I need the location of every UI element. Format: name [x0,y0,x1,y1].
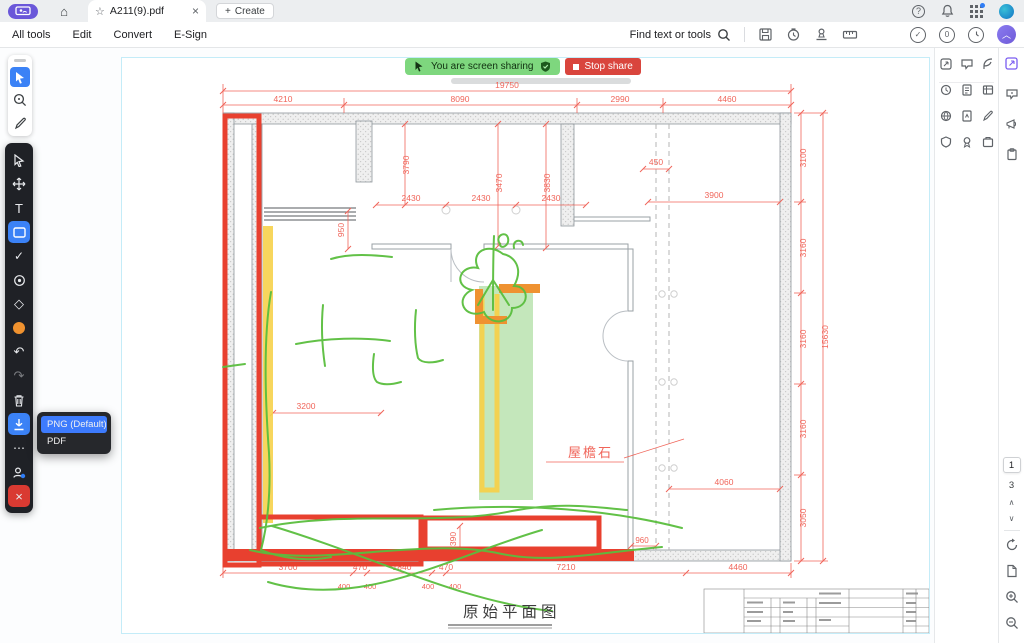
tool-icon-11[interactable] [956,134,977,149]
zoom-tool-button[interactable] [10,90,30,110]
page-number-input[interactable]: 1 [1003,457,1021,473]
export-share-icon[interactable] [1004,56,1019,76]
trash-button[interactable] [8,389,30,411]
right-tools-panel [934,48,998,643]
star-icon[interactable]: ☆ [95,5,105,18]
screen-share-banner: You are screen sharing Stop share [405,58,641,75]
svg-text:19750: 19750 [495,80,519,90]
svg-text:3830: 3830 [542,173,552,192]
svg-text:4460: 4460 [718,94,737,104]
account-avatar[interactable] [999,4,1014,19]
stop-icon [573,64,579,70]
svg-text:4460: 4460 [729,562,748,572]
tool-icon-3[interactable] [977,56,998,71]
check-tool[interactable]: ✓ [8,245,30,267]
home-icon[interactable]: ⌂ [52,4,76,19]
magnifier-comment-icon [13,93,27,107]
title-block [704,589,929,633]
search-icon [717,28,731,42]
comment-icon[interactable] [1005,87,1019,106]
floor-plan-drawing: 19750 4210 8090 2990 4460 3100 3160 3160… [122,58,929,633]
select-arrow-icon [14,71,26,84]
megaphone-icon[interactable] [1005,117,1019,136]
tab-title: A211(9).pdf [110,5,187,17]
divider [744,27,745,42]
svg-text:400: 400 [422,582,435,591]
help-icon[interactable]: ? [912,5,925,18]
tool-icon-4[interactable] [935,82,956,97]
menu-convert[interactable]: Convert [114,29,153,41]
voice-tool-icon[interactable]: 0 [939,27,955,43]
pencil-icon [14,117,27,130]
create-label: Create [235,6,265,17]
tool-icon-7[interactable] [935,108,956,123]
time-status-icon[interactable] [968,27,984,43]
participants-button[interactable] [8,461,30,483]
svg-text:3160: 3160 [798,329,808,348]
zoom-out-icon[interactable] [1005,616,1019,635]
svg-text:3900: 3900 [705,190,724,200]
menu-bar: All tools Edit Convert E-Sign Find text … [0,22,1024,48]
apps-grid-icon[interactable] [970,5,983,18]
eraser-tool[interactable]: ◇ [8,293,30,315]
rotate-page-icon[interactable] [1005,538,1019,557]
history-clock-icon[interactable] [786,27,801,42]
svg-text:960: 960 [635,536,649,545]
svg-text:3160: 3160 [798,419,808,438]
previous-page-button[interactable]: ∧ [1009,498,1015,507]
zoom-in-icon[interactable] [1005,590,1019,609]
plus-icon: + [225,6,231,17]
svg-text:原始平面图: 原始平面图 [463,603,561,621]
drag-handle[interactable] [14,59,26,62]
plan-title: 原始平面图 [448,603,561,628]
svg-text:2430: 2430 [542,193,561,203]
display-icon [15,6,31,17]
draw-tool-button[interactable] [10,113,30,133]
ai-assistant-button[interactable]: ︿ [997,25,1016,44]
measure-icon[interactable] [842,28,858,41]
svg-text:3200: 3200 [297,401,316,411]
svg-text:屋檐石: 屋檐石 [568,445,613,460]
svg-text:390: 390 [448,532,458,546]
menu-item-png[interactable]: PNG (Default) [41,416,107,433]
text-tool[interactable]: T [8,197,30,219]
find-label: Find text or tools [630,29,711,41]
screen-share-status: You are screen sharing [405,58,560,75]
rail-divider [1004,530,1020,531]
rectangle-tool[interactable] [8,221,30,243]
orange-bar[interactable] [499,284,540,293]
shield-check-icon [540,61,551,72]
tool-icon-10[interactable] [935,134,956,149]
close-tab-icon[interactable]: × [192,4,199,18]
svg-text:4210: 4210 [274,94,293,104]
right-rail: 1 3 ∧ ∨ [998,48,1024,643]
close-annotation-toolbar[interactable]: × [8,485,30,507]
page-view-icon[interactable] [1005,564,1018,583]
find-input[interactable]: Find text or tools [630,28,731,42]
undo-button[interactable]: ↶ [8,341,30,363]
share-message: You are screen sharing [431,61,533,72]
next-page-button[interactable]: ∨ [1009,514,1015,523]
page-total: 3 [1009,480,1014,491]
menu-item-pdf[interactable]: PDF [41,433,107,450]
svg-text:8090: 8090 [451,94,470,104]
menu-esign[interactable]: E-Sign [174,29,207,41]
save-icon[interactable] [758,27,773,42]
svg-text:3100: 3100 [798,148,808,167]
screen-share-indicator[interactable] [8,4,38,19]
tool-icon-2[interactable] [956,56,977,71]
svg-text:950: 950 [336,223,346,237]
clipboard-icon[interactable] [1005,147,1019,166]
spotlight-tool[interactable] [8,269,30,291]
download-format-menu: PNG (Default) PDF [37,412,111,454]
annotation-toolbar: T ✓ ◇ ↶ ↷ ⋯ × [5,143,33,513]
roof-line [451,78,631,84]
panel-divider [939,82,994,83]
svg-text:450: 450 [649,157,663,167]
yellow-band-left[interactable] [263,226,273,523]
tool-icon-8[interactable] [956,108,977,123]
protection-status-icon[interactable]: ✓ [910,27,926,43]
content-area: 19750 4210 8090 2990 4460 3100 3160 3160… [0,48,1024,643]
highlight-annotations[interactable] [263,226,540,523]
svg-text:4060: 4060 [715,477,734,487]
beam-lines [264,208,356,220]
create-button[interactable]: + Create [216,3,274,19]
svg-text:2430: 2430 [472,193,491,203]
svg-text:2430: 2430 [402,193,421,203]
notification-dot [980,3,985,8]
svg-text:3790: 3790 [401,155,411,174]
acrobat-window: ⌂ ☆ A211(9).pdf × + Create ? All [0,0,1024,643]
more-options-button[interactable]: ⋯ [8,437,30,459]
menu-edit[interactable]: Edit [73,29,92,41]
tool-icon-12[interactable] [977,134,998,149]
tool-icon-6[interactable] [977,82,998,97]
eave-stone-label: 屋檐石 [546,439,684,462]
svg-text:3470: 3470 [494,173,504,192]
menu-all-tools[interactable]: All tools [12,29,51,41]
notifications-bell-icon[interactable] [941,4,954,18]
svg-text:15630: 15630 [820,325,830,349]
pdf-page[interactable]: 19750 4210 8090 2990 4460 3100 3160 3160… [121,57,930,634]
tool-icon-5[interactable] [956,82,977,97]
pointer-tool[interactable] [8,149,30,171]
svg-text:2990: 2990 [611,94,630,104]
select-tool-button[interactable] [10,67,30,87]
move-tool[interactable] [8,173,30,195]
tool-icon-9[interactable] [977,108,998,123]
color-swatch[interactable] [8,317,30,339]
document-tab[interactable]: ☆ A211(9).pdf × [88,0,206,22]
svg-text:3160: 3160 [798,238,808,257]
download-button[interactable] [8,413,30,435]
stop-share-button[interactable]: Stop share [565,58,640,75]
cursor-icon [414,61,424,72]
dashed-gridlines [656,124,669,550]
stamp-icon[interactable] [814,27,829,42]
quick-tools-bar [8,55,32,136]
window-tab-bar: ⌂ ☆ A211(9).pdf × + Create ? [0,0,1024,22]
tool-icon-1[interactable] [935,56,956,71]
document-canvas[interactable]: 19750 4210 8090 2990 4460 3100 3160 3160… [0,48,934,643]
svg-text:3050: 3050 [798,508,808,527]
redo-button[interactable]: ↷ [8,365,30,387]
svg-text:7210: 7210 [557,562,576,572]
stop-share-label: Stop share [584,61,632,72]
